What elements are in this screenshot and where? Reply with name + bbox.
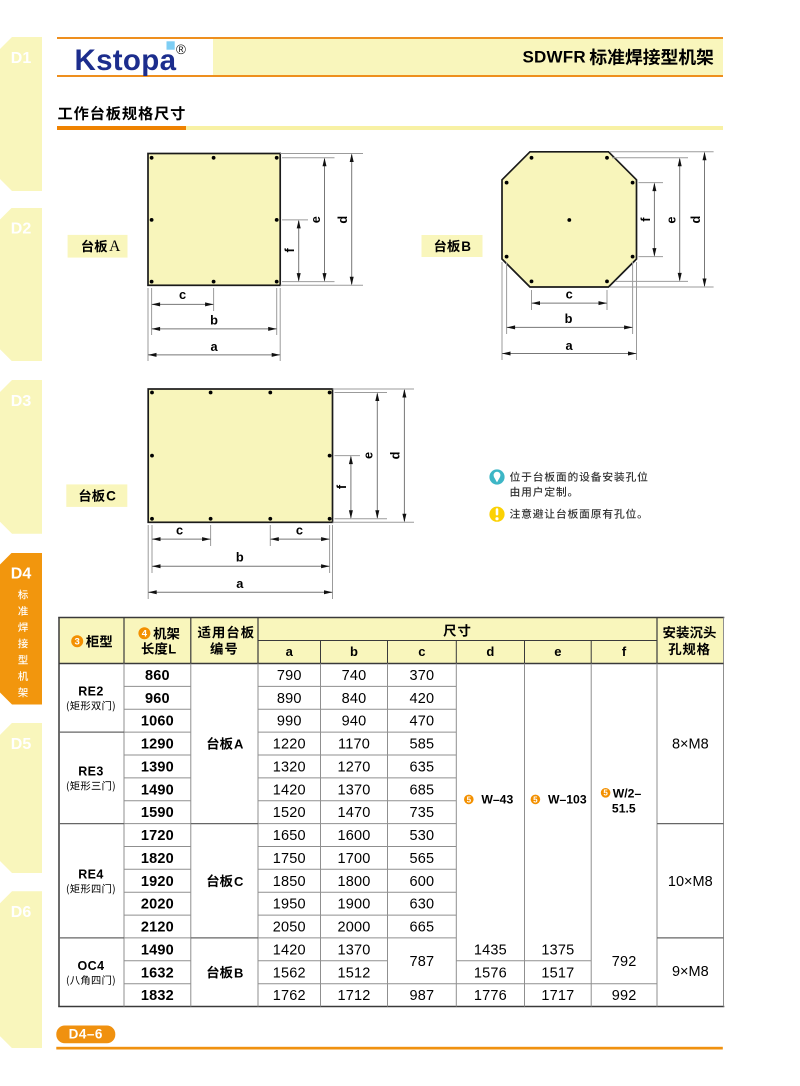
svg-text:a: a — [286, 644, 294, 659]
svg-text:1270: 1270 — [337, 760, 370, 776]
svg-text:e: e — [554, 644, 561, 659]
svg-text:e: e — [361, 452, 376, 459]
svg-text:685: 685 — [410, 782, 435, 798]
svg-text:W–103: W–103 — [548, 792, 587, 806]
svg-text:1320: 1320 — [273, 760, 306, 776]
svg-text:5: 5 — [467, 795, 472, 804]
svg-text:792: 792 — [612, 954, 637, 970]
svg-text:1562: 1562 — [273, 965, 306, 981]
svg-text:b: b — [236, 550, 244, 565]
svg-text:1800: 1800 — [337, 874, 370, 890]
svg-text:992: 992 — [612, 988, 637, 1004]
svg-text:b: b — [565, 311, 573, 326]
svg-text:1520: 1520 — [273, 805, 306, 821]
svg-text:e: e — [308, 216, 323, 223]
svg-text:370: 370 — [410, 668, 435, 684]
svg-text:1420: 1420 — [273, 782, 306, 798]
svg-text:D5: D5 — [11, 736, 32, 753]
svg-text:1776: 1776 — [474, 988, 507, 1004]
svg-text:1490: 1490 — [141, 942, 174, 958]
svg-text:A: A — [109, 238, 121, 255]
svg-text:1420: 1420 — [273, 942, 306, 958]
svg-text:f: f — [334, 484, 349, 489]
svg-text:OC4: OC4 — [78, 959, 105, 973]
svg-text:890: 890 — [277, 691, 302, 707]
svg-text:960: 960 — [145, 691, 170, 707]
svg-text:c: c — [176, 523, 183, 538]
svg-text:1517: 1517 — [541, 965, 574, 981]
svg-text:9×M8: 9×M8 — [672, 964, 709, 980]
svg-text:A: A — [234, 737, 244, 752]
svg-text:1650: 1650 — [273, 828, 306, 844]
svg-text:585: 585 — [410, 737, 435, 753]
svg-text:1060: 1060 — [141, 714, 174, 730]
svg-text:RE2: RE2 — [78, 685, 104, 699]
svg-text:D6: D6 — [11, 904, 32, 921]
svg-text:D4–6: D4–6 — [69, 1027, 103, 1042]
svg-text:790: 790 — [277, 668, 302, 684]
svg-text:W/2–: W/2– — [613, 786, 642, 800]
svg-text:787: 787 — [410, 954, 435, 970]
svg-text:1490: 1490 — [141, 782, 174, 798]
svg-text:1717: 1717 — [541, 988, 574, 1004]
svg-text:860: 860 — [145, 668, 170, 684]
svg-text:D1: D1 — [11, 50, 32, 67]
svg-text:4: 4 — [142, 629, 148, 640]
svg-text:735: 735 — [410, 805, 435, 821]
svg-text:665: 665 — [410, 920, 435, 936]
svg-text:630: 630 — [410, 897, 435, 913]
svg-text:600: 600 — [410, 874, 435, 890]
svg-text:C: C — [234, 874, 244, 889]
svg-text:d: d — [335, 216, 350, 224]
svg-text:2120: 2120 — [141, 920, 174, 936]
svg-text:B: B — [234, 965, 243, 980]
svg-text:c: c — [566, 286, 573, 301]
svg-text:SDWFR: SDWFR — [523, 48, 586, 67]
svg-text:1512: 1512 — [337, 965, 370, 981]
svg-text:1700: 1700 — [337, 851, 370, 867]
svg-text:B: B — [461, 239, 471, 254]
svg-text:W–43: W–43 — [481, 792, 513, 806]
svg-text:1750: 1750 — [273, 851, 306, 867]
svg-text:840: 840 — [342, 691, 367, 707]
svg-text:c: c — [296, 523, 303, 538]
svg-text:RE3: RE3 — [78, 765, 104, 779]
svg-text:635: 635 — [410, 760, 435, 776]
svg-text:2050: 2050 — [273, 920, 306, 936]
svg-text:1820: 1820 — [141, 851, 174, 867]
svg-text:1920: 1920 — [141, 874, 174, 890]
svg-text:d: d — [387, 451, 402, 459]
svg-text:1762: 1762 — [273, 988, 306, 1004]
svg-text:e: e — [664, 216, 679, 223]
svg-text:1832: 1832 — [141, 988, 174, 1004]
svg-text:D2: D2 — [11, 221, 32, 238]
svg-text:c: c — [418, 644, 425, 659]
svg-text:a: a — [566, 338, 574, 353]
svg-text:f: f — [282, 248, 297, 253]
svg-text:1370: 1370 — [337, 942, 370, 958]
svg-text:1850: 1850 — [273, 874, 306, 890]
svg-text:1712: 1712 — [337, 988, 370, 1004]
svg-text:1950: 1950 — [273, 897, 306, 913]
svg-text:f: f — [622, 644, 627, 659]
svg-text:5: 5 — [533, 795, 538, 804]
svg-text:®: ® — [176, 42, 186, 57]
svg-text:1390: 1390 — [141, 760, 174, 776]
svg-text:1576: 1576 — [474, 965, 507, 981]
svg-text:1720: 1720 — [141, 828, 174, 844]
svg-text:b: b — [350, 644, 358, 659]
svg-text:d: d — [486, 644, 494, 659]
svg-text:740: 740 — [342, 668, 367, 684]
svg-text:1470: 1470 — [337, 805, 370, 821]
svg-text:C: C — [106, 489, 116, 504]
svg-text:8×M8: 8×M8 — [672, 737, 709, 753]
svg-text:987: 987 — [410, 988, 435, 1004]
svg-text:470: 470 — [410, 714, 435, 730]
svg-text:1632: 1632 — [141, 965, 174, 981]
svg-text:565: 565 — [410, 851, 435, 867]
svg-text:b: b — [210, 313, 218, 328]
svg-text:d: d — [688, 216, 703, 224]
svg-text:c: c — [179, 287, 186, 302]
svg-text:2000: 2000 — [337, 920, 370, 936]
svg-text:f: f — [638, 217, 653, 222]
svg-text:a: a — [236, 576, 244, 591]
svg-text:1290: 1290 — [141, 737, 174, 753]
svg-text:1370: 1370 — [337, 782, 370, 798]
svg-text:1375: 1375 — [541, 942, 574, 958]
svg-text:530: 530 — [410, 828, 435, 844]
svg-text:1170: 1170 — [338, 737, 370, 753]
svg-text:10×M8: 10×M8 — [668, 874, 713, 890]
svg-text:420: 420 — [410, 691, 435, 707]
svg-text:D4: D4 — [11, 566, 32, 583]
svg-text:L: L — [168, 642, 176, 657]
svg-text:1590: 1590 — [141, 805, 174, 821]
svg-text:RE4: RE4 — [78, 867, 104, 881]
svg-text:5: 5 — [603, 789, 608, 798]
svg-text:1435: 1435 — [474, 942, 507, 958]
svg-text:3: 3 — [75, 637, 80, 648]
svg-text:51.5: 51.5 — [612, 801, 636, 815]
svg-text:1600: 1600 — [337, 828, 370, 844]
svg-text:a: a — [210, 339, 218, 354]
svg-text:Kstopa: Kstopa — [75, 44, 177, 77]
svg-text:2020: 2020 — [141, 897, 174, 913]
svg-text:940: 940 — [342, 714, 367, 730]
svg-text:990: 990 — [277, 714, 302, 730]
svg-text:1900: 1900 — [337, 897, 370, 913]
svg-text:1220: 1220 — [273, 737, 306, 753]
svg-text:D3: D3 — [11, 393, 32, 410]
